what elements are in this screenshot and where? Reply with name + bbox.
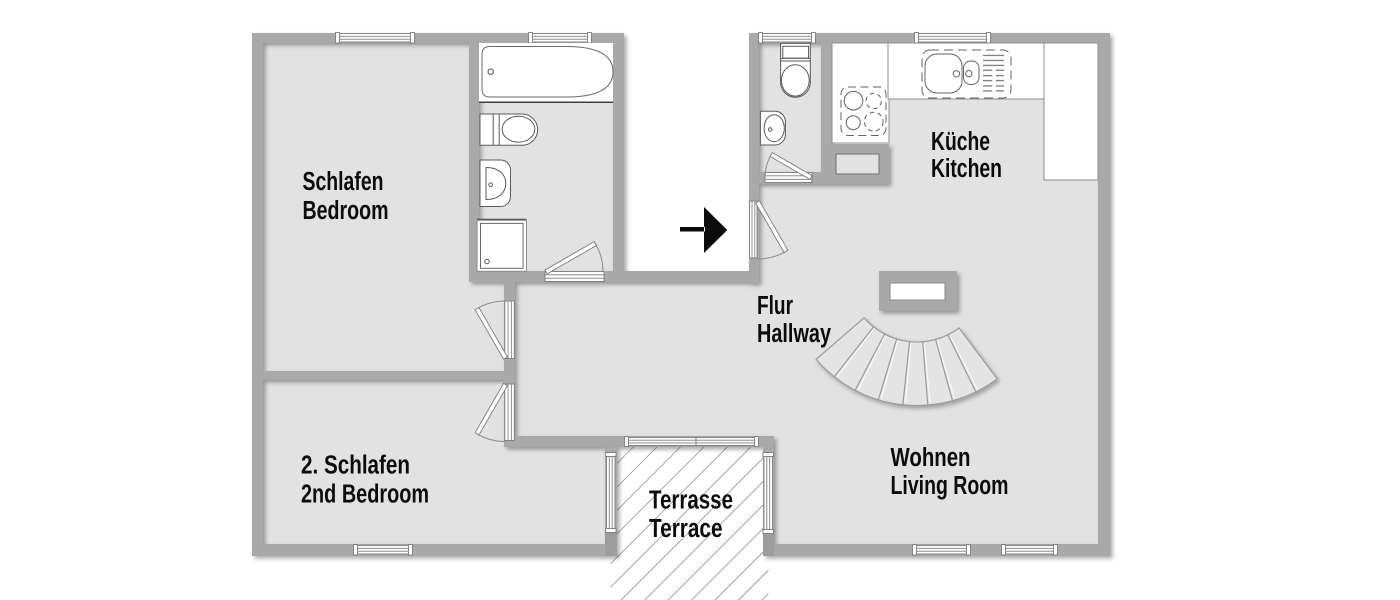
svg-text:Terrace: Terrace <box>649 515 723 543</box>
svg-text:Wohnen: Wohnen <box>891 444 971 472</box>
svg-text:Schlafen: Schlafen <box>303 168 384 196</box>
svg-text:Bedroom: Bedroom <box>303 197 389 225</box>
svg-text:Küche: Küche <box>931 128 990 156</box>
svg-text:Kitchen: Kitchen <box>931 155 1002 183</box>
svg-text:2. Schlafen: 2. Schlafen <box>301 452 410 480</box>
svg-text:Terrasse: Terrasse <box>649 487 733 515</box>
svg-text:2nd Bedroom: 2nd Bedroom <box>301 480 429 508</box>
svg-text:Flur: Flur <box>757 292 793 320</box>
svg-text:Living Room: Living Room <box>891 472 1009 500</box>
svg-text:Hallway: Hallway <box>757 320 832 348</box>
